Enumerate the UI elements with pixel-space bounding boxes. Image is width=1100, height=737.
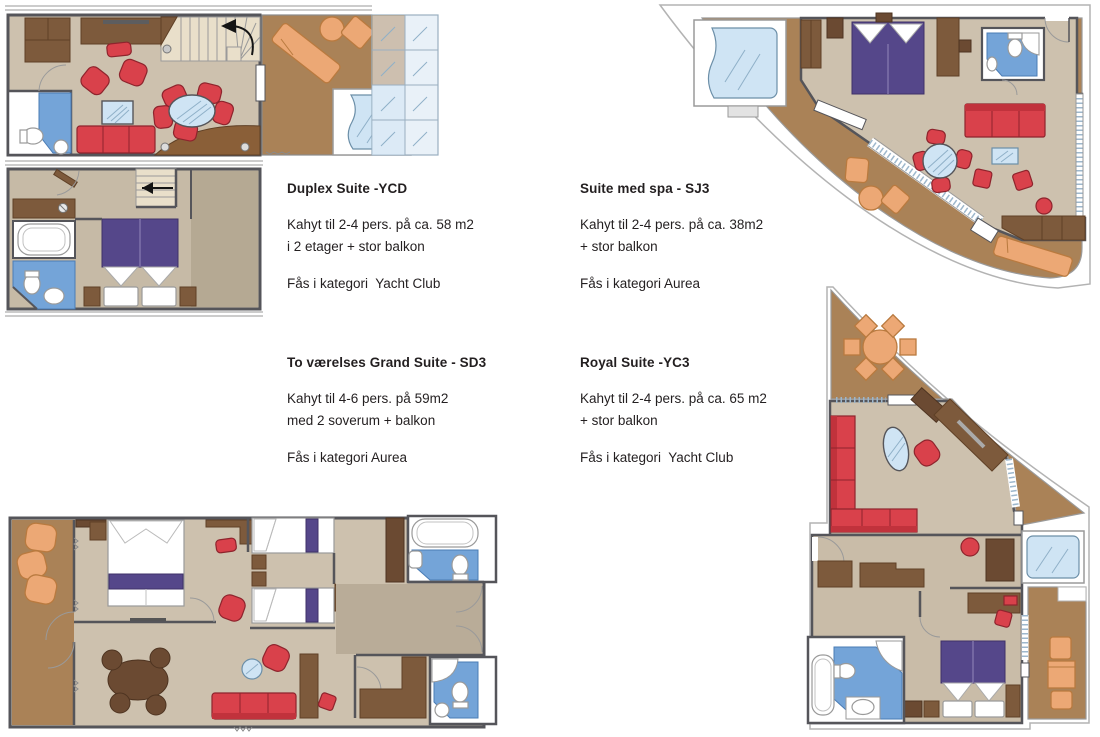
duplex-bedroom-level	[5, 161, 263, 316]
brochure-page: { "page_title": "MSC suite floor plans",…	[0, 0, 1100, 735]
grand-suite-balcony	[12, 520, 74, 725]
bathtub	[18, 224, 70, 255]
suite-title: To værelses Grand Suite - SD3	[287, 355, 557, 370]
royal-balcony-right	[1021, 587, 1086, 719]
royal-bathroom	[808, 637, 904, 723]
royal-spa-tub	[1022, 531, 1084, 583]
suite-balcony-line: + stor balkon	[580, 236, 850, 258]
glass-panels	[372, 15, 438, 155]
suite-balcony-line: med 2 soverum + balkon	[287, 410, 557, 432]
staircase-up	[161, 17, 260, 61]
royal-suite-floorplan	[800, 285, 1100, 735]
spa-suite-bed	[852, 13, 924, 94]
suite-capacity-line: Kahyt til 4-6 pers. på 59m2	[287, 388, 557, 410]
suite-title: Duplex Suite -YCD	[287, 181, 557, 196]
suite-card-royal: Royal Suite -YC3 Kahyt til 2-4 pers. på …	[580, 355, 850, 469]
grand-suite-floorplan	[8, 512, 500, 737]
suite-category: Fås i kategori Aurea	[287, 447, 557, 469]
suite-capacity-line: Kahyt til 2-4 pers. på ca. 38m2	[580, 214, 850, 236]
suite-capacity-line: Kahyt til 2-4 pers. på ca. 58 m2	[287, 214, 557, 236]
suite-title: Suite med spa - SJ3	[580, 181, 850, 196]
duplex-living-room	[8, 15, 260, 155]
staircase-down	[136, 169, 176, 207]
grand-bathroom-bottom	[430, 657, 496, 724]
suite-capacity-line: Kahyt til 2-4 pers. på ca. 65 m2	[580, 388, 850, 410]
suite-category: Fås i kategori Yacht Club	[287, 273, 557, 295]
suite-card-grand: To værelses Grand Suite - SD3 Kahyt til …	[287, 355, 557, 469]
suite-balcony-line: + stor balkon	[580, 410, 850, 432]
suite-title: Royal Suite -YC3	[580, 355, 850, 370]
royal-living-room	[830, 388, 1023, 535]
suite-category: Fås i kategori Yacht Club	[580, 447, 850, 469]
duplex-balcony	[256, 15, 438, 155]
suite-card-spa: Suite med spa - SJ3 Kahyt til 2-4 pers. …	[580, 181, 850, 295]
suite-balcony-line: i 2 etager + stor balkon	[287, 236, 557, 258]
suite-card-duplex: Duplex Suite -YCD Kahyt til 2-4 pers. på…	[287, 181, 557, 295]
suite-category: Fås i kategori Aurea	[580, 273, 850, 295]
grand-bathroom-top	[408, 516, 496, 582]
corridor	[336, 584, 482, 654]
spa-tub-enclosure	[694, 20, 786, 117]
